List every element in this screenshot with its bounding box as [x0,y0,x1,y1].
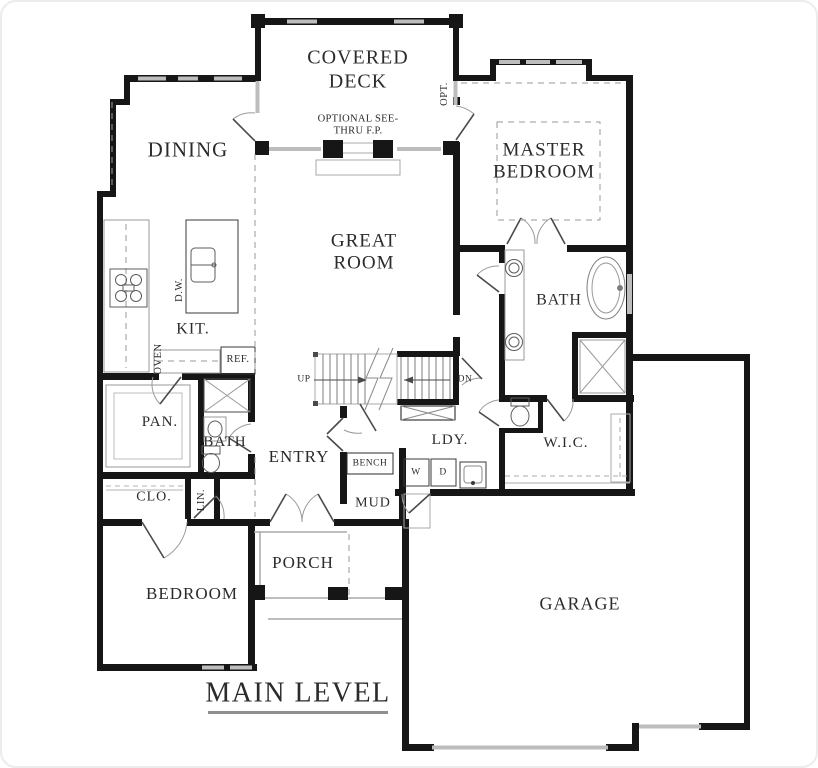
bathtub [587,257,625,319]
floor-plan-drawing [2,2,818,768]
room-label-dining: DINING [148,138,229,163]
room-label-covered-deck: COVERED DECK [298,46,418,93]
porch-outline [254,532,402,619]
cooktop [110,269,147,307]
utility-sink [460,462,486,488]
floor-plan: COVERED DECK OPTIONAL SEE-THRU F.P. OPT.… [0,0,818,768]
room-label-porch: PORCH [272,553,334,573]
room-label-master-bath: BATH [536,292,582,311]
room-label-wic: W.I.C. [543,435,588,453]
room-label-kitchen: KIT. [176,321,209,340]
room-label-closet: CLO. [136,490,172,507]
master-shower [580,340,625,393]
room-label-mud: MUD [355,496,391,513]
fixture-label-oven: OVEN [153,343,165,374]
room-label-bedroom: BEDROOM [146,584,238,604]
room-label-hall-bath: BATH [203,434,246,452]
master-sinks [506,260,523,351]
room-label-garage: GARAGE [540,593,621,614]
hall-bath-shower [204,379,250,412]
windows [138,20,701,750]
fixture-label-washer: W [411,467,420,478]
page-title: MAIN LEVEL [205,676,390,709]
room-label-laundry: LDY. [432,432,469,450]
room-label-pantry: PAN. [142,414,178,432]
stairs-up-label: UP [297,374,310,385]
chase-box [401,406,455,420]
master-vanity [505,250,524,360]
fixture-label-refrigerator: REF. [226,354,249,366]
island-sink [191,248,216,282]
note-opt-door: OPT. [439,82,451,106]
room-label-master-bedroom: MASTER BEDROOM [479,140,609,185]
water-closet-toilet [511,398,529,426]
room-label-linen: LIN. [196,489,208,511]
room-label-entry: ENTRY [269,447,330,467]
fixture-label-dishwasher: D.W. [174,278,186,302]
walls [97,14,750,751]
fixture-label-bench: BENCH [353,458,388,469]
note-optional-fireplace: OPTIONAL SEE-THRU F.P. [314,114,402,139]
stair-arrows [313,352,413,406]
title-underline [208,711,388,714]
stairs-down-label: DN [458,374,473,385]
room-label-great-room: GREAT ROOM [321,231,407,276]
fixture-label-dryer: D [439,467,446,478]
